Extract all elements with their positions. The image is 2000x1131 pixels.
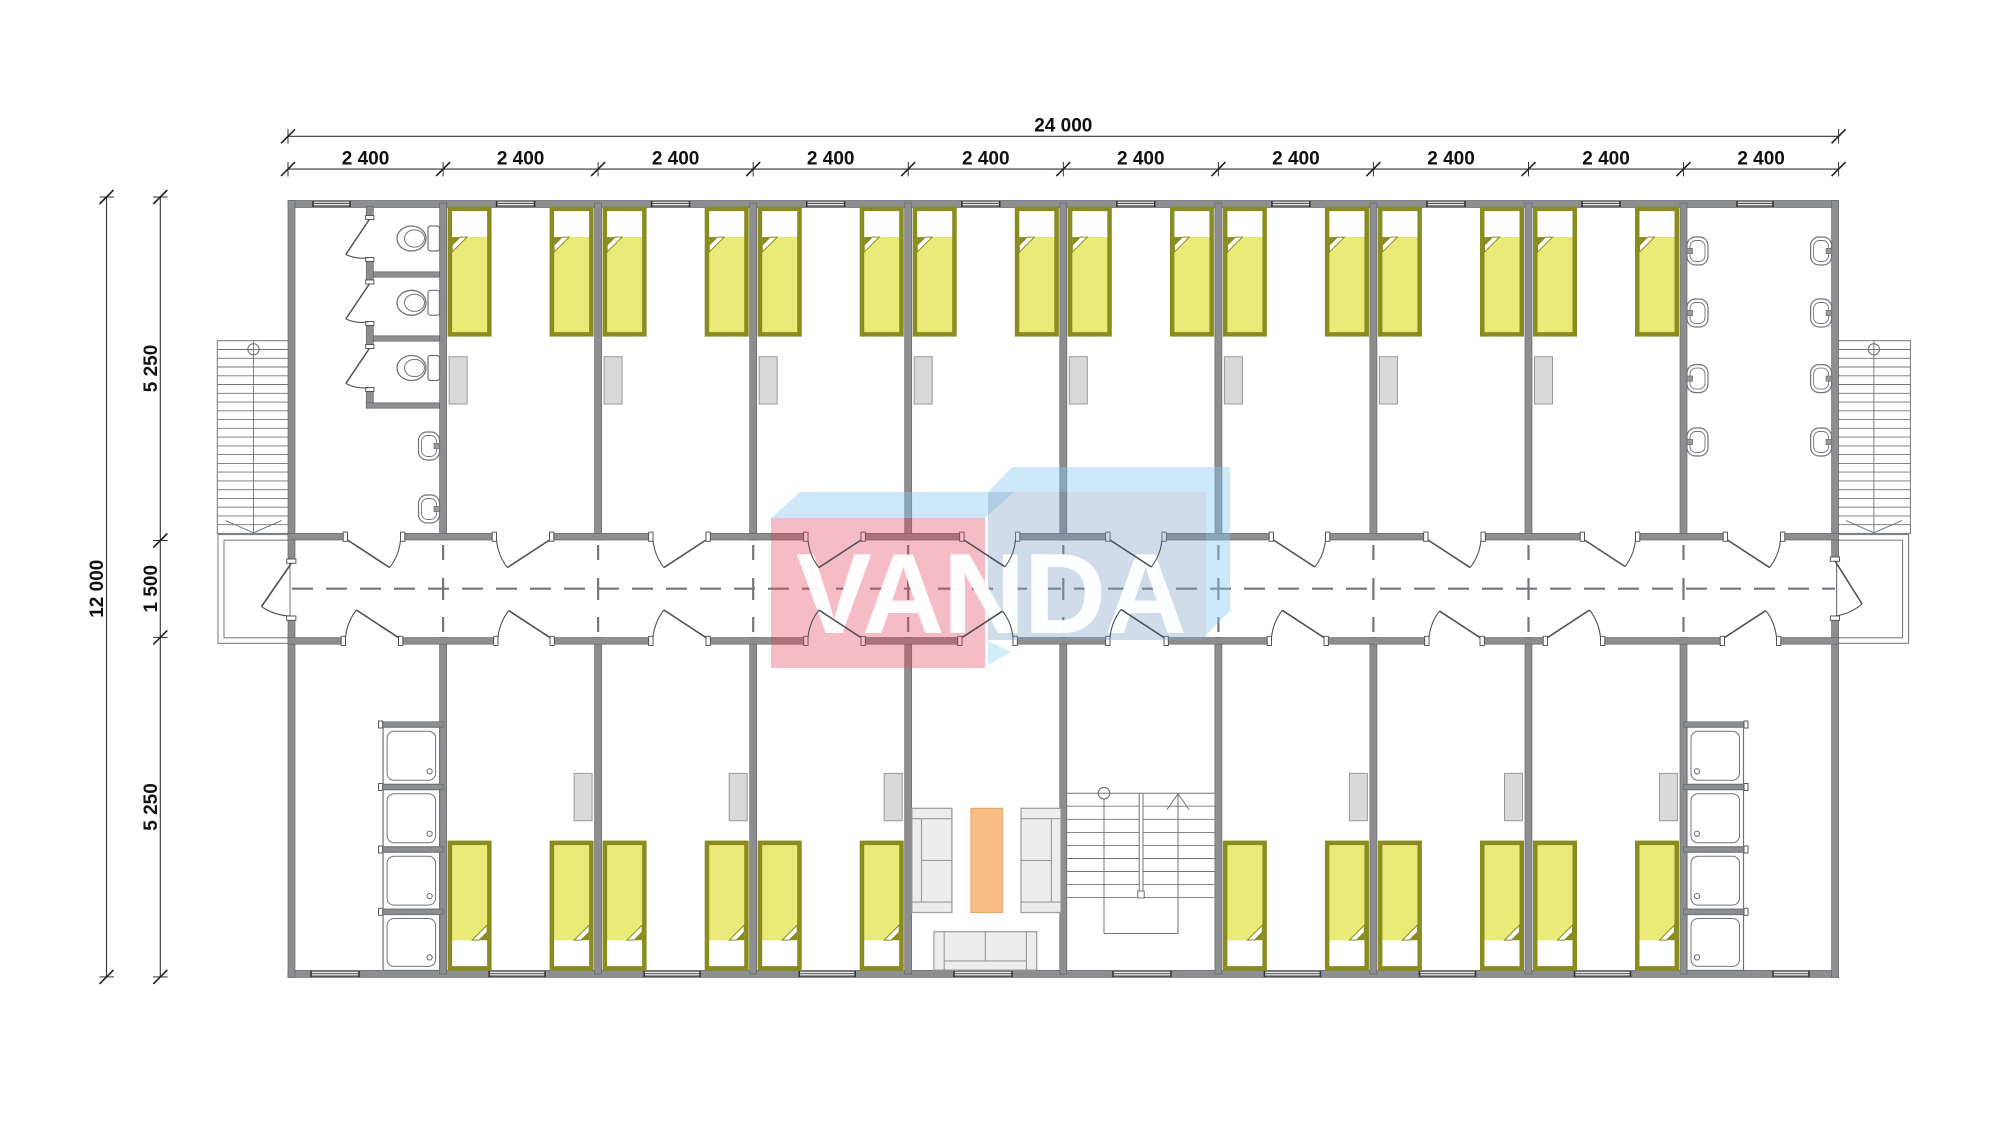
svg-text:2 400: 2 400 (497, 149, 545, 170)
svg-text:5 250: 5 250 (141, 345, 162, 393)
svg-text:2 400: 2 400 (1272, 149, 1320, 170)
svg-text:12 000: 12 000 (87, 560, 108, 618)
svg-text:2 400: 2 400 (1582, 149, 1630, 170)
svg-text:2 400: 2 400 (652, 149, 700, 170)
svg-text:1 500: 1 500 (141, 565, 162, 613)
svg-text:2 400: 2 400 (1427, 149, 1475, 170)
svg-text:24 000: 24 000 (1034, 116, 1092, 137)
svg-text:VANDA: VANDA (796, 531, 1185, 658)
svg-text:2 400: 2 400 (342, 149, 390, 170)
svg-text:2 400: 2 400 (962, 149, 1010, 170)
svg-text:2 400: 2 400 (807, 149, 855, 170)
svg-text:2 400: 2 400 (1737, 149, 1785, 170)
svg-text:2 400: 2 400 (1117, 149, 1165, 170)
svg-text:5 250: 5 250 (141, 783, 162, 831)
